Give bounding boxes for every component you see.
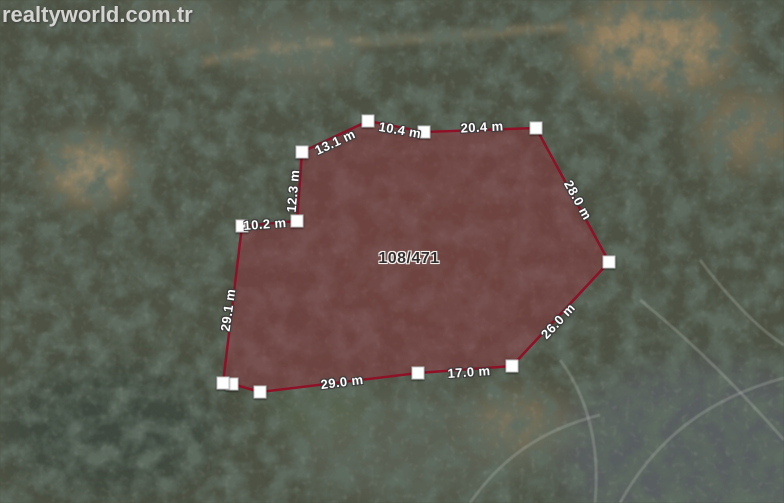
edge-length-label: 20.4 m <box>460 118 504 135</box>
vertex-marker <box>254 386 267 399</box>
parcel-number-label: 108/471 <box>378 250 439 268</box>
vertex-marker <box>217 377 230 390</box>
vertex-marker <box>530 122 543 135</box>
vertex-marker <box>296 146 309 159</box>
vertex-marker <box>412 367 425 380</box>
vertex-marker <box>603 256 616 269</box>
vertex-marker <box>506 360 519 373</box>
edge-length-label: 26.0 m <box>538 300 578 342</box>
edge-length-label: 29.1 m <box>218 288 239 333</box>
measurement-layer: 108/471 13.1 m10.4 m20.4 m28.0 m26.0 m17… <box>0 0 784 503</box>
vertex-marker <box>362 115 375 128</box>
vertex-marker <box>291 215 304 228</box>
edge-length-label: 17.0 m <box>447 363 491 381</box>
edge-length-label: 13.1 m <box>312 126 357 158</box>
watermark: realtyworld.com.tr <box>2 2 193 28</box>
map-screenshot: 108/471 13.1 m10.4 m20.4 m28.0 m26.0 m17… <box>0 0 784 503</box>
edge-length-label: 29.0 m <box>320 372 364 392</box>
edge-length-label: 12.3 m <box>284 169 303 213</box>
edge-length-label: 28.0 m <box>561 178 595 223</box>
edge-length-label: 10.4 m <box>378 119 423 141</box>
edge-length-label: 10.2 m <box>243 215 287 233</box>
